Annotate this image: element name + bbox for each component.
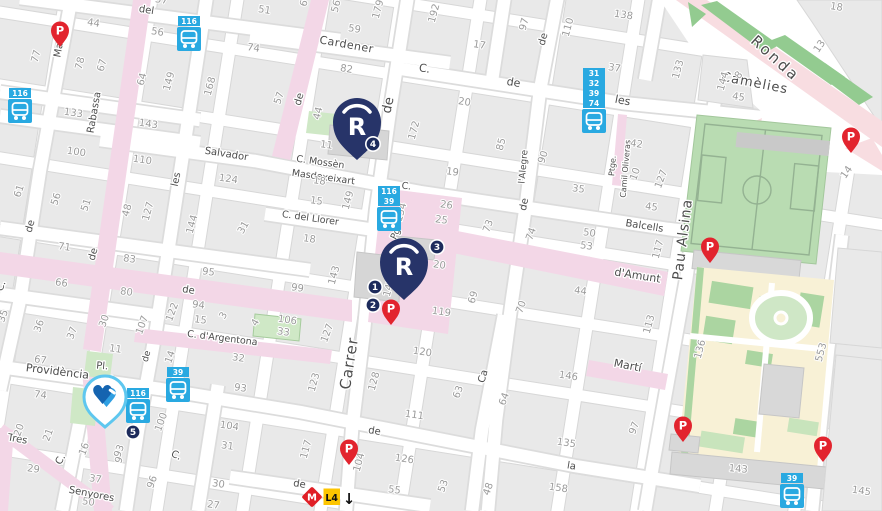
brand-letter: R — [395, 253, 413, 281]
bus-line-number: 116 — [130, 389, 146, 398]
metro-line-label: L4 — [325, 493, 338, 504]
parking-letter: P — [345, 442, 353, 456]
result-number-badge[interactable]: 3 — [430, 240, 444, 254]
house-number: 37 — [88, 473, 102, 486]
house-number: 50 — [582, 227, 596, 240]
parking-letter: P — [679, 419, 687, 433]
house-number: 20 — [457, 96, 471, 109]
garden-fountain — [775, 312, 787, 324]
house-number: 18 — [312, 175, 326, 188]
bus-stop[interactable]: 116 — [126, 388, 150, 423]
badge-number: 1 — [372, 283, 378, 293]
parking-letter: P — [387, 302, 395, 316]
result-number-badge[interactable]: 5 — [126, 425, 140, 439]
city-block — [408, 0, 482, 8]
city-block — [715, 497, 789, 511]
city-block-east — [830, 248, 882, 348]
garden-building — [759, 364, 804, 418]
heart-icon: ♥ — [91, 381, 114, 411]
street-label: Pl. — [96, 361, 109, 373]
map-canvas: delCardenerC.delesCamèliesRondaSalvadorC… — [0, 0, 882, 511]
house-number: 27 — [206, 499, 220, 511]
street-label: Ptge. — [607, 155, 618, 176]
house-number: 143 — [728, 463, 748, 476]
house-number: 56 — [150, 26, 164, 39]
house-number: 29 — [26, 463, 40, 476]
house-number: 11 — [108, 343, 122, 356]
parking-letter: P — [847, 130, 855, 144]
house-number: 80 — [119, 286, 133, 299]
house-number: 99 — [290, 282, 304, 295]
brand-letter: R — [348, 113, 366, 141]
bus-stop[interactable]: 116 — [8, 88, 32, 123]
badge-number: 5 — [130, 428, 136, 438]
house-number: 53 — [579, 240, 593, 253]
house-number: 94 — [191, 299, 205, 312]
street-label: de — [292, 478, 306, 491]
house-number: 51 — [257, 4, 271, 17]
house-number: 95 — [201, 266, 215, 279]
house-number: 83 — [122, 253, 136, 266]
result-number-badge[interactable]: 2 — [366, 298, 380, 312]
house-number: 30 — [211, 478, 225, 491]
bus-line-number: 39 — [173, 368, 183, 377]
house-number: 32 — [231, 352, 245, 365]
bus-line-number: 116 — [12, 89, 28, 98]
badge-number: 4 — [370, 140, 376, 150]
bus-line-number: 31 — [589, 69, 599, 78]
house-number: 45 — [731, 91, 745, 104]
result-number-badge[interactable]: 4 — [366, 137, 380, 151]
house-number: 93 — [233, 382, 247, 395]
street-label: la — [566, 460, 577, 472]
bus-stop[interactable]: 11639 — [377, 186, 401, 231]
house-number: 55 — [387, 484, 401, 497]
house-number: 50 — [81, 496, 95, 509]
city-block — [0, 13, 54, 86]
badge-number: 3 — [434, 243, 440, 253]
house-number: 15 — [193, 314, 207, 327]
parking-letter: P — [819, 439, 827, 453]
house-number: 26 — [439, 199, 453, 212]
result-number-badge[interactable]: 1 — [368, 280, 382, 294]
street-label: C. — [418, 61, 431, 76]
house-number: 66 — [54, 277, 68, 290]
house-number: 71 — [57, 241, 71, 254]
house-number: 35 — [571, 183, 585, 196]
house-number: 18 — [302, 233, 316, 246]
map: delCardenerC.delesCamèliesRondaSalvadorC… — [0, 0, 882, 511]
house-number: 15 — [309, 195, 323, 208]
bus-stop[interactable]: 31323974 — [582, 68, 606, 133]
house-number: 33 — [276, 326, 290, 339]
badge-number: 2 — [370, 301, 376, 311]
street-label: de — [181, 284, 195, 297]
street-label: C. — [401, 180, 412, 192]
bus-stop[interactable]: 39 — [780, 473, 804, 508]
house-number: 37 — [607, 62, 621, 75]
house-number: 19 — [445, 166, 459, 179]
bus-line-number: 39 — [384, 197, 394, 206]
house-number: 67 — [33, 354, 47, 367]
street-label: de — [506, 75, 522, 90]
bus-line-number: 116 — [381, 187, 397, 196]
bus-stop[interactable]: 39 — [166, 367, 190, 402]
bus-line-number: 74 — [589, 99, 599, 108]
parking-letter: P — [56, 24, 64, 38]
bus-line-number: 116 — [181, 17, 197, 26]
house-number: 96 — [145, 474, 160, 490]
house-number: 44 — [573, 285, 587, 298]
house-number: 82 — [339, 63, 353, 76]
house-number: 18 — [829, 1, 843, 14]
house-number: 74 — [246, 42, 260, 55]
parking-letter: P — [706, 240, 714, 254]
house-number: 42 — [629, 138, 643, 151]
house-number: 25 — [434, 214, 448, 227]
house-number: 74 — [33, 389, 47, 402]
house-number: 20 — [432, 259, 446, 272]
bus-line-number: 39 — [589, 89, 599, 98]
bus-stop[interactable]: 116 — [177, 16, 201, 51]
house-number: 44 — [86, 17, 100, 30]
bus-line-number: 32 — [589, 79, 599, 88]
house-number: 45 — [644, 201, 658, 214]
street-label: de — [367, 425, 381, 438]
metro-m: M — [307, 493, 317, 504]
arrow-down-icon: ↓ — [343, 490, 356, 508]
house-number: 31 — [220, 440, 234, 453]
house-number: 17 — [472, 39, 486, 52]
house-number: 59 — [347, 23, 361, 36]
house-number: 57 — [154, 0, 168, 7]
bus-line-number: 39 — [787, 474, 797, 483]
house-number: 11 — [319, 139, 333, 152]
metro-entrance[interactable]: ML4↓ — [301, 486, 355, 508]
